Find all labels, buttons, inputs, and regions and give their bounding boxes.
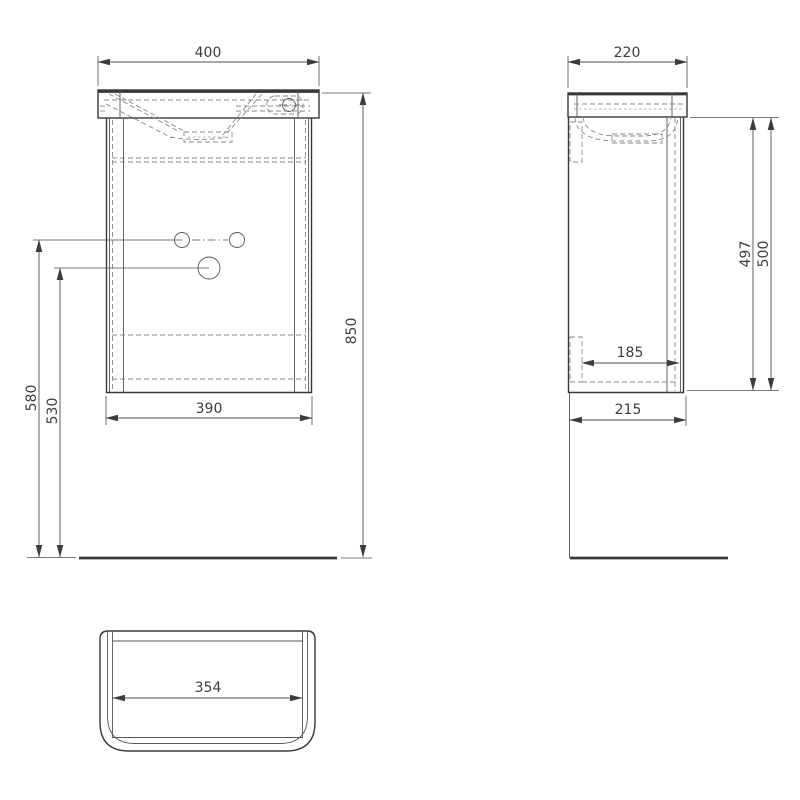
side-cabinet [568,117,728,558]
dim-large-hole-height-label: 530 [45,398,61,425]
side-basin-outline [568,93,687,117]
dim-top-width-label: 400 [195,45,222,61]
bottom-dimensions: 354 [113,680,302,698]
mount-rail-top-hidden [570,122,582,162]
dim-body-depth-label: 215 [615,402,642,418]
dim-small-holes-height-label: 580 [24,385,40,412]
front-dimensions: 400 850 390 580 530 [24,45,372,558]
dim-rail-clearance-label: 185 [617,345,644,361]
mount-rail-bottom-hidden [570,337,582,382]
side-drain-hidden [612,134,662,143]
front-washbasin [98,90,319,142]
side-bowl-hidden [575,117,678,141]
dim-body-width-label: 390 [196,401,223,417]
side-dimensions: 220 497 500 185 215 [568,45,779,426]
dim-top-depth-label: 220 [614,45,641,61]
mount-hole-right [230,233,245,248]
dim-overall-height-label: 850 [344,318,360,345]
front-cabinet [106,118,312,393]
side-washbasin [568,93,687,143]
side-view: 220 497 500 185 215 [568,45,779,558]
drawing-canvas: 400 850 390 580 530 [0,0,800,800]
dim-front-height-inner-label: 497 [738,241,754,268]
technical-drawing: 400 850 390 580 530 [0,0,800,800]
dim-inner-width-label: 354 [195,680,222,696]
bottom-view: 354 [100,631,315,751]
front-view: 400 850 390 580 530 [24,45,372,558]
dim-front-height-label: 500 [756,241,772,268]
